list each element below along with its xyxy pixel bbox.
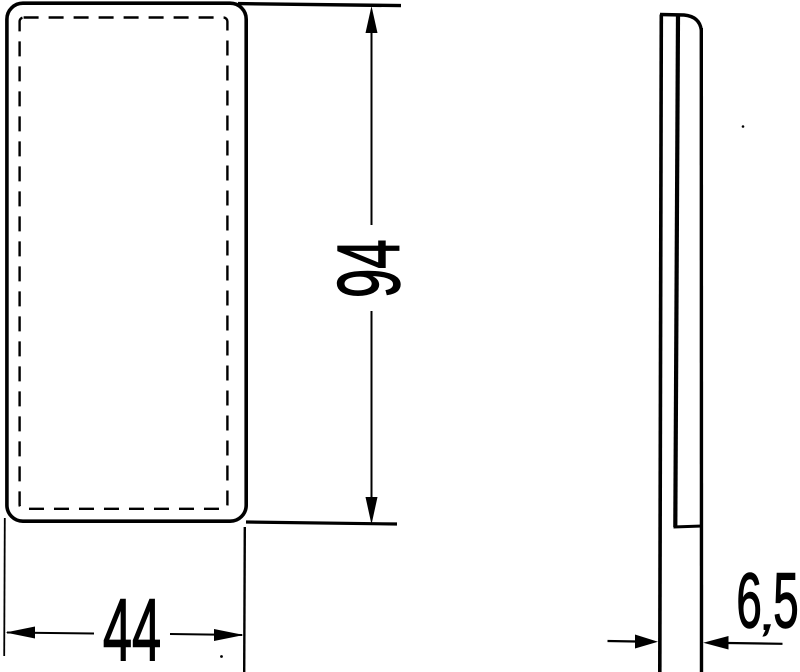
svg-text:6: 6 bbox=[736, 556, 761, 644]
svg-text:44: 44 bbox=[103, 582, 161, 672]
svg-text:94: 94 bbox=[320, 239, 418, 298]
svg-text:5: 5 bbox=[773, 556, 798, 644]
